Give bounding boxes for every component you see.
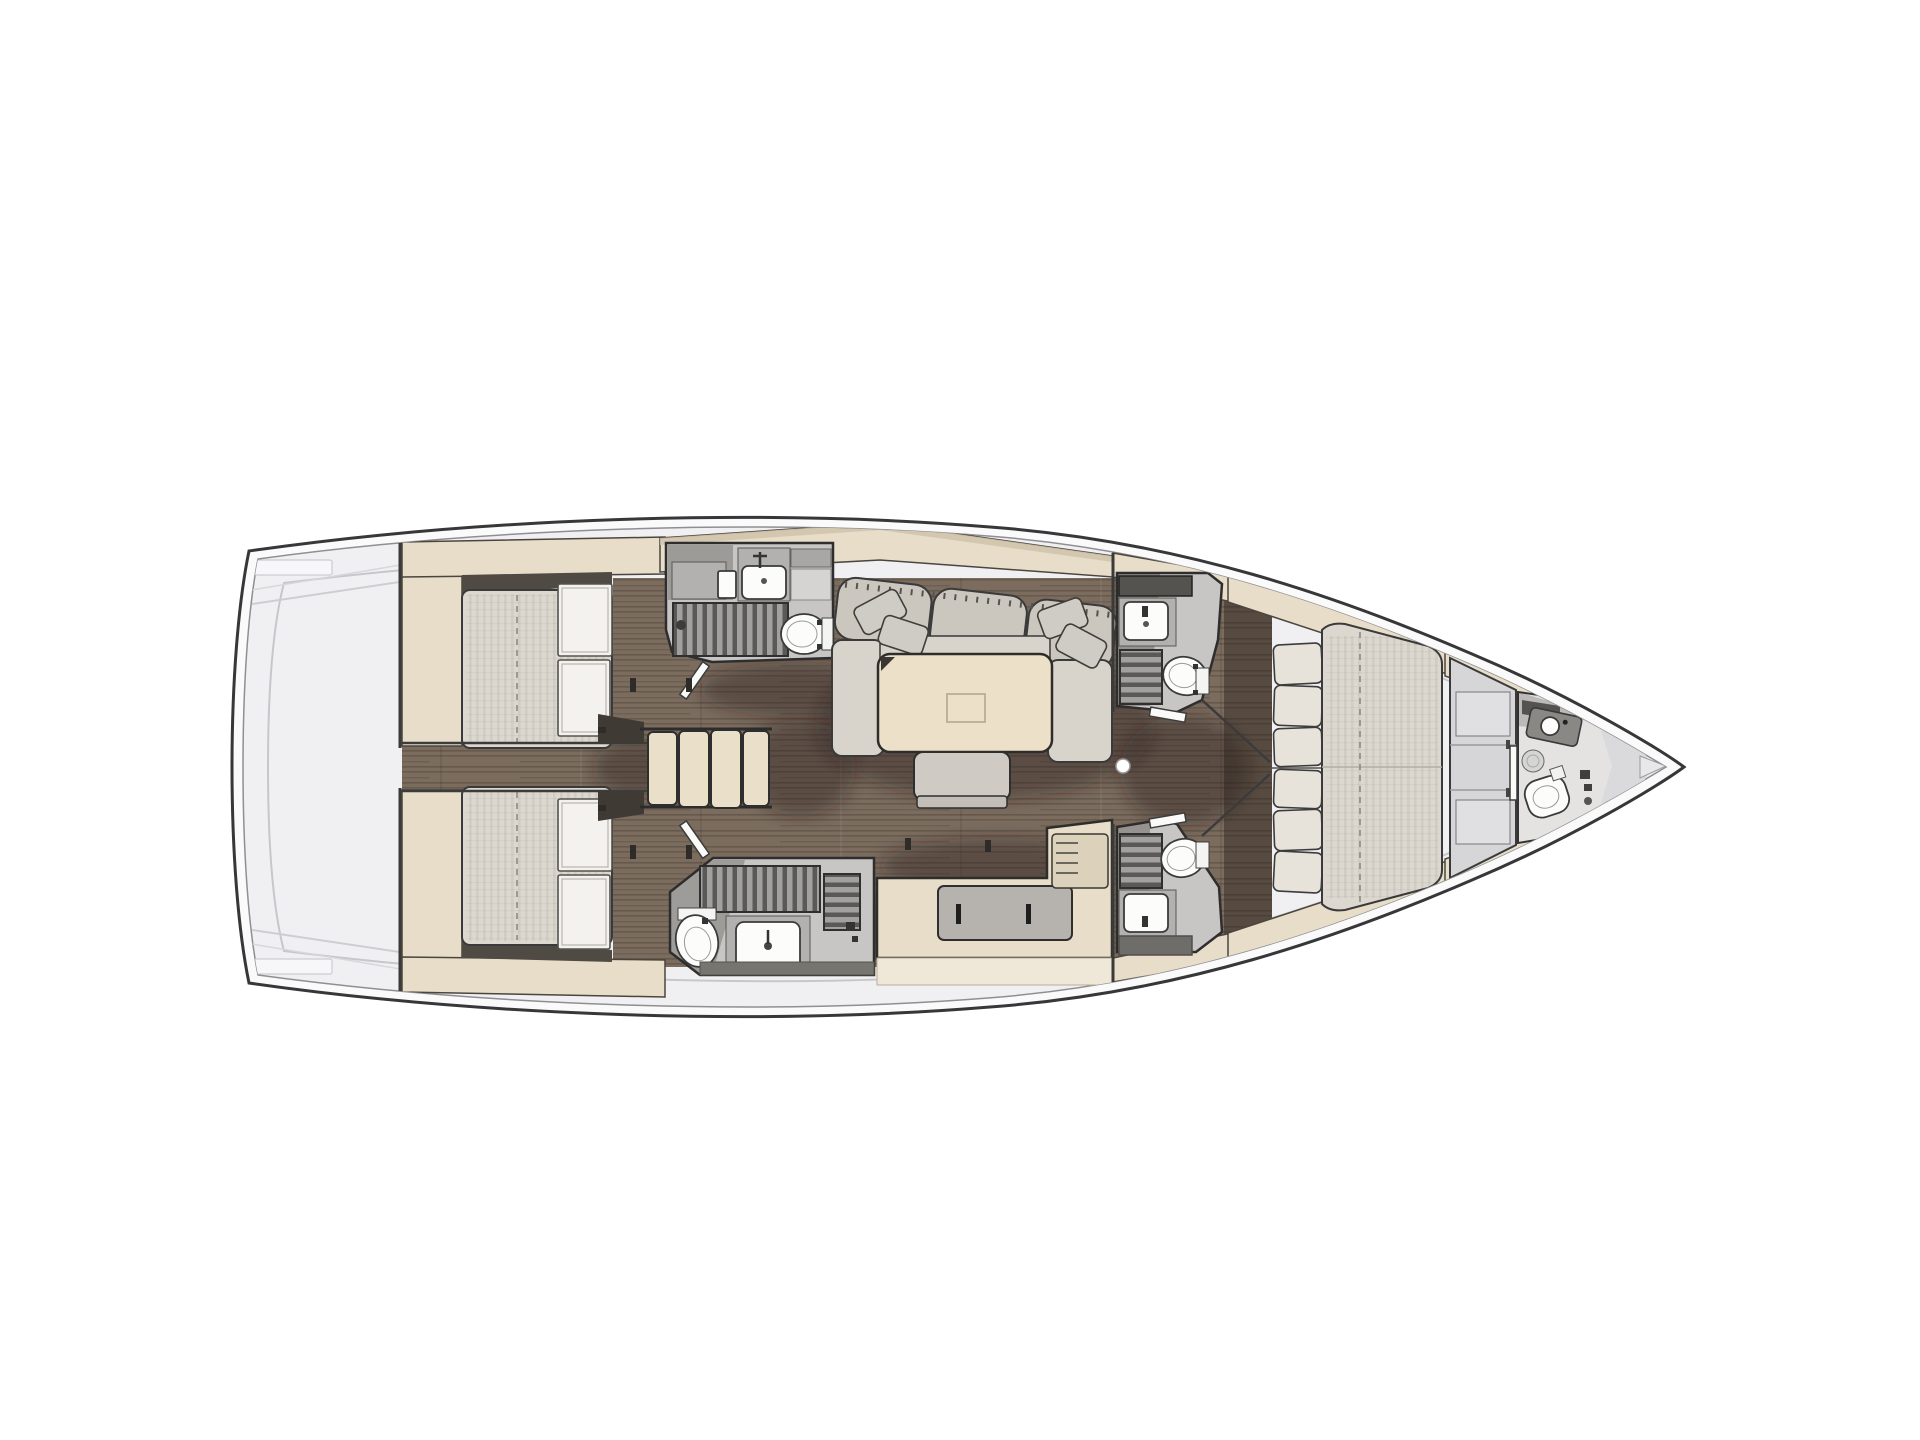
wall-stub (630, 845, 636, 859)
hull-side-locker-band (402, 537, 665, 577)
mast-foot-dot (1116, 759, 1130, 773)
interior (250, 523, 1666, 997)
berth-locker (558, 584, 612, 656)
toilet-hinge (702, 918, 708, 924)
cushion (1273, 769, 1322, 809)
shower-grate (700, 866, 820, 912)
transom-locker (250, 560, 332, 575)
salon-table (878, 654, 1052, 752)
faucet-icon (1142, 916, 1148, 927)
settee-chaise-right (1048, 660, 1112, 762)
head-locker (791, 549, 831, 567)
round-hatch-icon (1522, 750, 1544, 772)
bow-head (1510, 692, 1617, 843)
wall-stub (985, 840, 991, 852)
wardrobe (402, 550, 462, 746)
hull-side-locker-band (402, 957, 665, 997)
toilet-hinge (817, 644, 822, 649)
cushion (1273, 851, 1323, 893)
faucet-icon (1142, 606, 1148, 617)
toilet-tank (822, 618, 833, 650)
head-sill (700, 962, 874, 975)
cushion (1273, 809, 1322, 851)
wardrobe (1450, 658, 1516, 878)
wall-stub (905, 838, 911, 850)
drain-icon (761, 578, 767, 584)
bench-base (917, 796, 1007, 808)
wall-stub (686, 845, 692, 859)
fixture-mark (852, 936, 858, 942)
fixture-mark (1584, 797, 1592, 805)
shower-grate (1120, 834, 1162, 888)
toilet-hinge (1193, 690, 1198, 695)
yacht-floor-plan (0, 0, 1920, 1440)
hinge-mark (598, 805, 606, 811)
wardrobe-door (1456, 800, 1510, 844)
transom-locker (250, 959, 332, 974)
fixture-mark (1580, 770, 1590, 779)
wall-stub (630, 678, 636, 692)
step-tread (711, 730, 741, 808)
step-tread (743, 731, 769, 806)
toilet-tank (1196, 842, 1209, 868)
head-shelf (1119, 936, 1192, 955)
hinge-mark (598, 727, 606, 733)
handle-icon (1026, 904, 1031, 924)
companionway-steps (640, 729, 772, 808)
floor-plan-canvas (0, 0, 1920, 1440)
salon-bench (914, 752, 1010, 800)
toilet-hinge (817, 620, 822, 625)
drain-icon (1143, 621, 1149, 627)
step-tread (679, 731, 709, 807)
fixture-mark (846, 922, 855, 931)
handle-icon (956, 904, 961, 924)
toilet-hinge (1193, 664, 1198, 669)
wall-stub (686, 678, 692, 692)
settee-chaise-left (832, 640, 884, 756)
shower-grate (673, 603, 788, 656)
shower-grate (824, 874, 860, 930)
head-door (1510, 746, 1517, 800)
step-tread (648, 732, 677, 805)
cushion (1273, 685, 1322, 727)
head-shelf (1119, 576, 1192, 596)
fixture-mark (1584, 784, 1592, 791)
shower-grate (1120, 650, 1162, 704)
cistern (718, 571, 736, 598)
wardrobe-door (1456, 692, 1510, 736)
berth-locker (558, 875, 610, 949)
shower-drain-icon (676, 620, 686, 630)
cushion (1273, 643, 1323, 685)
head-locker (791, 569, 831, 600)
galley-plinth (877, 958, 1112, 985)
cushion (1273, 727, 1322, 767)
forward-floor-shadow (1224, 592, 1272, 943)
